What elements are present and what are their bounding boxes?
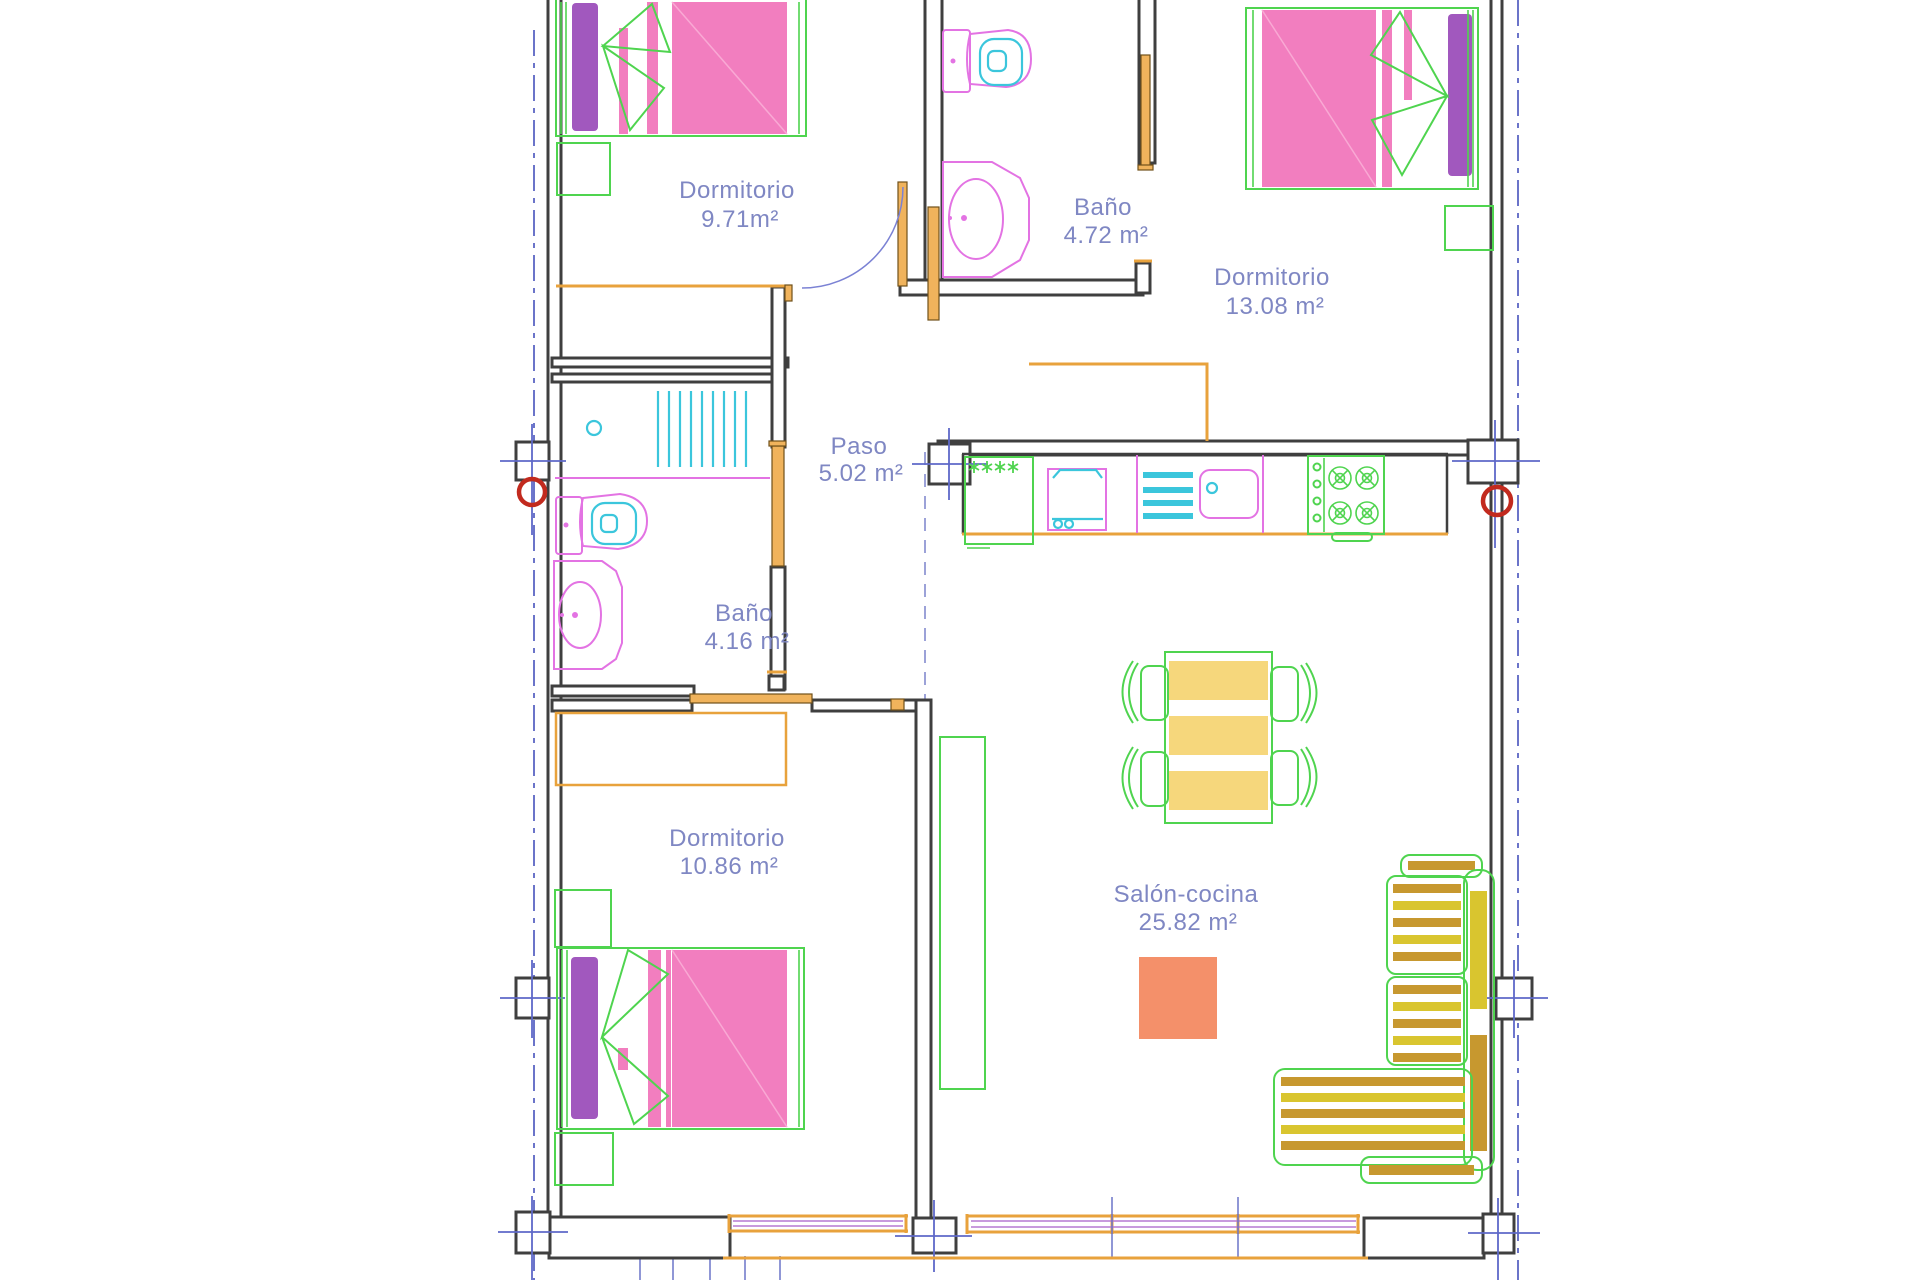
room-label-paso-name: Paso (831, 433, 888, 460)
floor-plan-page: Dormitorio 9.71m² Baño 4.72 m² Dormitori… (0, 0, 1920, 1280)
room-label-bedroom2-name: Dormitorio (669, 825, 785, 852)
kitchen-fixtures (962, 454, 1448, 548)
room-label-bedroom3-area: 13.08 m² (1226, 293, 1325, 320)
chair (1123, 661, 1169, 723)
sideboard (940, 737, 985, 1089)
floor-plan-drawing: Dormitorio 9.71m² Baño 4.72 m² Dormitori… (0, 0, 1920, 1280)
nightstand (557, 143, 610, 195)
chair (1271, 747, 1317, 807)
wall-bottom-left (549, 1217, 730, 1258)
washbasin (943, 162, 1029, 277)
room-label-bath1-area: 4.72 m² (1064, 222, 1149, 249)
double-bed (556, 0, 806, 136)
wardrobe-bedroom2 (556, 713, 786, 785)
door-leaf-bedroom3 (1141, 55, 1150, 167)
chair (1123, 747, 1169, 809)
wall-bedroom2-north-left (552, 700, 692, 711)
room-label-salon-area: 25.82 m² (1139, 909, 1238, 936)
room-label-bath1-name: Baño (1074, 194, 1132, 221)
room-label-salon-name: Salón-cocina (1114, 881, 1259, 908)
bedroom-2-furniture (555, 890, 804, 1185)
chair (1271, 663, 1317, 723)
shower-drain (587, 421, 601, 435)
kitchen-sink (1200, 470, 1258, 518)
door-swing-arc (802, 187, 903, 288)
wall-bottom-right (1364, 1218, 1484, 1258)
wall-step (1136, 263, 1150, 293)
structural-columns (498, 420, 1548, 1280)
nightstand (555, 1133, 613, 1185)
gas-cooktop (1308, 456, 1384, 541)
door-jamb (769, 441, 786, 446)
door-leaf-bath1 (928, 207, 939, 320)
dining-table-set (1123, 652, 1317, 823)
wall-jamb-bath2 (769, 676, 784, 690)
window (966, 1197, 1360, 1257)
toilet (943, 30, 1031, 92)
wall-paso-west-upper (772, 287, 785, 447)
windows (723, 1197, 1368, 1258)
door-leaf-bedroom2 (690, 694, 812, 703)
kitchen-zone-partition (1029, 364, 1207, 441)
wall-bedroom1-south (552, 358, 788, 367)
window (728, 1214, 908, 1233)
wall-bath2-south (552, 686, 694, 696)
door-jamb (785, 285, 792, 301)
column (895, 1200, 972, 1272)
room-label-bath2-area: 4.16 m² (705, 628, 790, 655)
washer (1048, 469, 1106, 530)
washbasin (554, 561, 622, 669)
wall-bath2-north (552, 374, 773, 382)
bedroom-3-furniture (1246, 8, 1493, 250)
corner-sofa (1274, 855, 1494, 1183)
rug (1139, 957, 1217, 1039)
column (1478, 960, 1548, 1038)
room-label-paso-area: 5.02 m² (819, 460, 904, 487)
nightstand (1445, 206, 1493, 250)
double-bed (557, 948, 804, 1129)
door-jamb (1138, 165, 1153, 170)
dish-drainer (1143, 472, 1193, 519)
double-bed (1246, 8, 1478, 189)
wall-salon-west (916, 700, 931, 1218)
door-jamb (891, 699, 904, 710)
exterior-wall-right (1491, 0, 1502, 1218)
room-label-bath2-name: Baño (715, 600, 773, 627)
shower-tray (555, 391, 770, 478)
room-label-bedroom3-name: Dormitorio (1214, 264, 1330, 291)
bedroom-1-furniture (556, 0, 806, 195)
bathroom-1-fixtures (943, 30, 1031, 277)
door-leaf-bath2 (772, 446, 784, 566)
column (912, 428, 988, 500)
room-label-bedroom1-name: Dormitorio (679, 177, 795, 204)
nightstand (555, 890, 611, 947)
room-label-bedroom2-area: 10.86 m² (680, 853, 779, 880)
room-label-bedroom1-area: 9.71m² (701, 206, 779, 233)
dining-table (1165, 652, 1272, 823)
toilet (556, 494, 647, 554)
